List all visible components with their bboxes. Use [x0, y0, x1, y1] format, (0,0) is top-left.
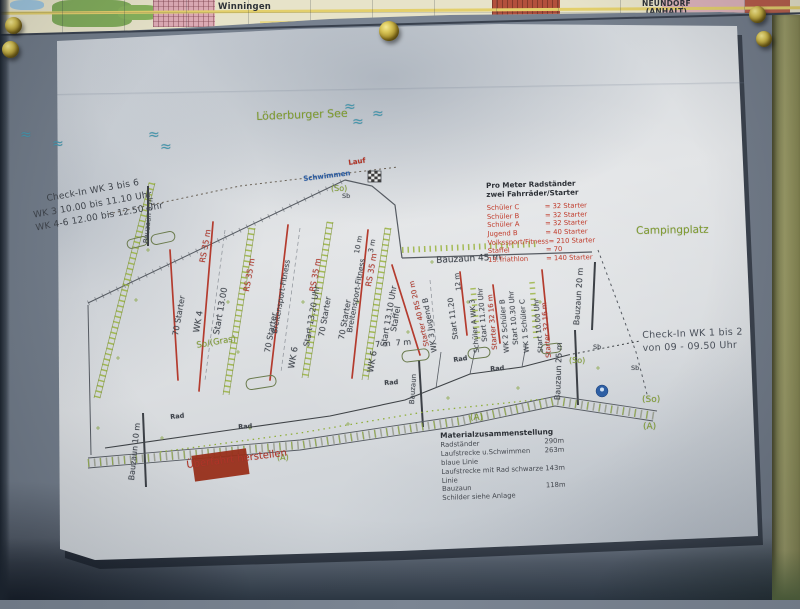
plan-label: (So) [642, 396, 660, 405]
plan-annotations: Löderburger SeeCampingplatz≈≈≈≈≈≈≈LaufSc… [0, 0, 800, 600]
plan-label: Sb [342, 193, 350, 200]
plan-label: 12 m [454, 272, 463, 291]
plan-label: Rad [384, 379, 398, 386]
plan-label: Start 13.00 [213, 287, 230, 336]
push-pin [756, 31, 772, 47]
checkin-right-note: Check-In WK 1 bis 2 von 09 - 09.50 Uhr [642, 325, 743, 355]
plan-label: RS 35 m [243, 258, 257, 293]
wave-icon: ≈ [148, 128, 160, 142]
plan-label: WK 4 [193, 310, 205, 333]
wave-icon: ≈ [52, 137, 64, 151]
plan-label: Start 13.20 Uhr [303, 285, 322, 347]
plan-label: (A) [470, 414, 483, 423]
plan-label: Staffel [390, 306, 402, 333]
wave-icon: ≈ [372, 107, 384, 121]
push-pin [749, 6, 766, 23]
push-pin [379, 21, 399, 41]
ueberfahrt-label: Überfahrt herstellen [186, 449, 288, 471]
route-label-lauf: Lauf [348, 158, 366, 167]
wave-icon: ≈ [352, 115, 364, 129]
plan-label: 3 m [368, 239, 377, 254]
push-pin [2, 41, 19, 58]
wave-icon: ≈ [160, 140, 172, 154]
plan-label: Starter 32 16 m [487, 294, 499, 350]
plan-label: 70 Starter [172, 295, 187, 336]
plan-label: RS 35 m [199, 229, 213, 264]
plan-label: Start 11.20 [447, 297, 460, 340]
plan-label: RS 35 m [365, 253, 379, 288]
plan-label: WK 1 Schüler C [519, 299, 531, 353]
plan-label: 10 m [354, 235, 364, 254]
plan-label: So/(Gras) [196, 335, 237, 350]
push-pin [5, 17, 22, 34]
plan-label: Rad [170, 413, 185, 421]
plan-label: WK 6 [367, 350, 379, 373]
plan-label: 70 Starter [318, 296, 333, 337]
rack-legend: Pro Meter Radständer zwei Fahrräder/Star… [486, 178, 596, 265]
plan-label: Rad [453, 355, 468, 363]
plan-label: Rad [490, 365, 504, 372]
plan-label: WK 6 [288, 346, 300, 369]
plan-label: Bauzaun [409, 374, 418, 405]
plan-label: Sb [593, 344, 601, 351]
legend-subtitle: zwei Fahrräder/Starter [486, 187, 594, 199]
plan-label: Rad [238, 423, 252, 430]
plan-label: Breitensport-Fitness [346, 258, 366, 333]
plan-label: (So) [569, 357, 585, 365]
plan-label: Sb [631, 365, 639, 372]
wave-icon: ≈ [344, 100, 356, 114]
plan-label: Breitensport-Fitness [271, 259, 291, 334]
lake-label: Löderburger See [256, 108, 348, 122]
wave-icon: ≈ [20, 128, 32, 142]
plan-label: 7 m 7 m [375, 338, 411, 348]
materials-list: Materialzusammenstellung Radständer290m … [440, 427, 566, 504]
route-label-schwimmen: Schwimmen [303, 170, 351, 183]
campsite-label: Campingplatz [636, 225, 709, 237]
plan-label: (A) [643, 423, 656, 432]
plan-label: Bauzaun 20 m [573, 267, 585, 325]
plan-label: Bauzaun 25 m [554, 342, 564, 400]
plan-label: Bauzaun 10 m [128, 423, 142, 481]
